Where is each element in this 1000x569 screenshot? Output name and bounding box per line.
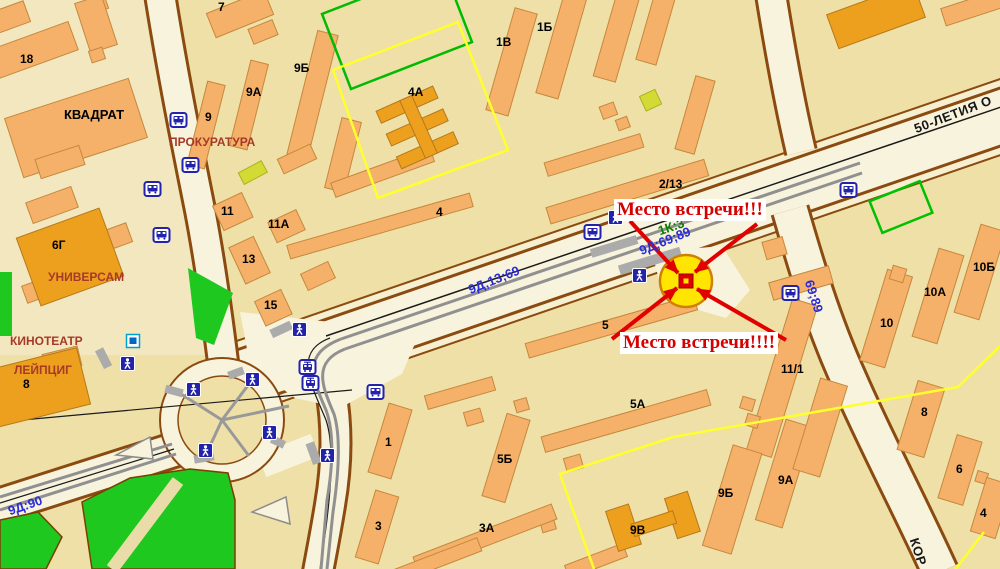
pedestrian-crossing-icon — [633, 269, 647, 283]
building-label: 1 — [385, 435, 392, 449]
bus-stop-icon — [183, 158, 199, 172]
green-strip — [0, 272, 12, 336]
building-label: 9А — [778, 473, 793, 487]
building-label: 3А — [479, 521, 494, 535]
building-label: 10А — [924, 285, 946, 299]
building-label: 18 — [20, 52, 33, 66]
pedestrian-crossing-icon — [246, 373, 260, 387]
place-label-cinema-name: ЛЕЙПЦИГ — [14, 363, 72, 377]
building-label: 3 — [375, 519, 382, 533]
building-label: 1Б — [537, 20, 552, 34]
building-label: 11 — [221, 204, 234, 218]
building-label: 11/1 — [781, 362, 804, 376]
pedestrian-crossing-icon — [199, 444, 213, 458]
building-label: 5Б — [497, 452, 512, 466]
building-label: 4А — [408, 85, 423, 99]
building-label: 5А — [630, 397, 645, 411]
bus-stop-icon — [171, 113, 187, 127]
place-label-cinema: КИНОТЕАТР — [10, 334, 83, 348]
building-label: 9Б — [294, 61, 309, 75]
bus-stop-icon — [841, 183, 857, 197]
building-label: 10Б — [973, 260, 995, 274]
building-label: 1В — [496, 35, 511, 49]
building-label: 6Г — [52, 238, 65, 252]
building-label: 13 — [242, 252, 255, 266]
meeting-annotation-bottom: Место встречи!!!! — [620, 332, 778, 354]
building-label: 9 — [205, 110, 212, 124]
building-label: 2/13 — [659, 177, 682, 191]
meeting-annotation-top: Место встречи!!! — [614, 199, 766, 221]
bus-stop-icon — [154, 228, 170, 242]
pedestrian-crossing-icon — [321, 449, 335, 463]
building-label: 6 — [956, 462, 963, 476]
pedestrian-crossing-icon — [263, 426, 277, 440]
building-label: 5 — [602, 318, 609, 332]
pedestrian-crossing-icon — [293, 323, 307, 337]
building-label: 8 — [921, 405, 928, 419]
bus-stop-icon — [145, 182, 161, 196]
pedestrian-crossing-icon — [121, 357, 135, 371]
place-label-supermarket: УНИВЕРСАМ — [48, 270, 124, 284]
tram-stop-icon — [300, 360, 316, 374]
bus-stop-icon — [585, 225, 601, 239]
building-label: 4 — [436, 205, 443, 219]
block-name-label: КВАДРАТ — [64, 107, 124, 122]
building-label: 9В — [630, 523, 645, 537]
building-label: 10 — [880, 316, 893, 330]
building-label: 9А — [246, 85, 261, 99]
building-label: 15 — [264, 298, 277, 312]
pedestrian-crossing-icon — [187, 383, 201, 397]
bus-stop-icon — [783, 286, 799, 300]
building-label: 4 — [980, 506, 987, 520]
map-viewport[interactable]: 18 7 9Б 9А 9 11 11А 13 15 6Г 8 4А 4 1В 1… — [0, 0, 1000, 569]
building-label: 9Б — [718, 486, 733, 500]
poi-icon — [127, 335, 140, 348]
bus-stop-icon — [368, 385, 384, 399]
building-label: 11А — [268, 217, 289, 231]
tram-stop-icon — [303, 376, 319, 390]
building-label: 7 — [218, 0, 225, 14]
place-label-prosecutor: ПРОКУРАТУРА — [169, 135, 255, 149]
building-label: 8 — [23, 377, 30, 391]
